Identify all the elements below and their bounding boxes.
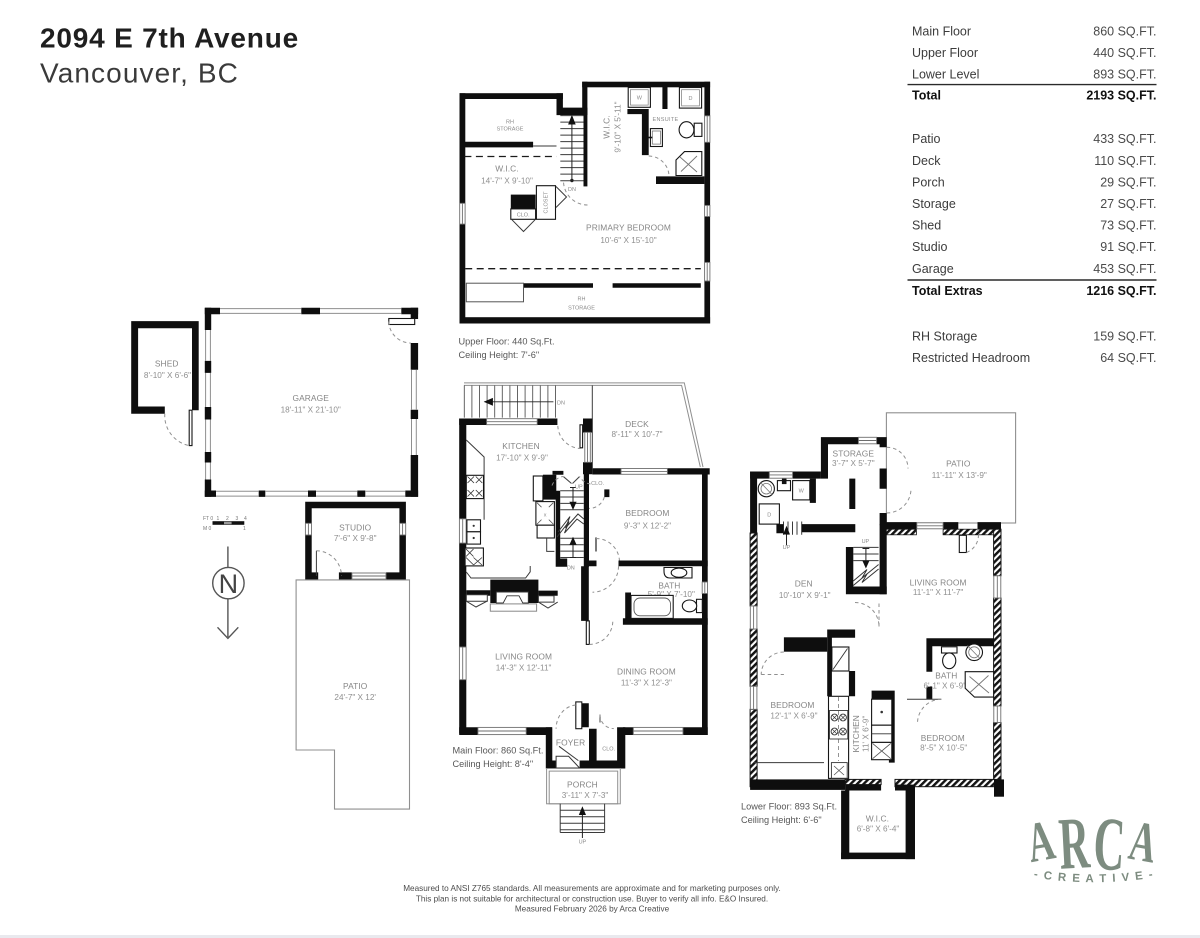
svg-text:24'-7" X 12': 24'-7" X 12' bbox=[334, 693, 376, 702]
svg-text:3'-7" X 5'-7": 3'-7" X 5'-7" bbox=[832, 459, 875, 468]
svg-text:Garage: Garage bbox=[912, 262, 954, 276]
svg-text:DN: DN bbox=[568, 187, 576, 193]
svg-text:Measured to ANSI Z765 standard: Measured to ANSI Z765 standards. All mea… bbox=[403, 884, 781, 893]
svg-text:11'-3" X 12'-3": 11'-3" X 12'-3" bbox=[621, 679, 672, 688]
svg-text:DN: DN bbox=[557, 400, 565, 406]
svg-text:BEDROOM: BEDROOM bbox=[771, 700, 815, 710]
svg-text:4: 4 bbox=[244, 516, 247, 522]
svg-text:110 SQ.FT.: 110 SQ.FT. bbox=[1094, 154, 1156, 168]
svg-text:LIVING ROOM: LIVING ROOM bbox=[495, 651, 552, 661]
svg-text:Storage: Storage bbox=[912, 197, 956, 211]
svg-text:D: D bbox=[689, 96, 693, 102]
svg-text:Patio: Patio bbox=[912, 132, 941, 146]
svg-text:Measured February 2026 by Arca: Measured February 2026 by Arca Creative bbox=[515, 905, 670, 914]
svg-text:ENSUITE: ENSUITE bbox=[653, 117, 679, 123]
svg-text:7'-6" X 9'-8": 7'-6" X 9'-8" bbox=[334, 534, 377, 543]
svg-text:91 SQ.FT.: 91 SQ.FT. bbox=[1100, 240, 1156, 254]
svg-text:BEDROOM: BEDROOM bbox=[626, 508, 670, 518]
svg-text:W: W bbox=[799, 489, 805, 495]
svg-text:Porch: Porch bbox=[912, 175, 945, 189]
svg-text:453 SQ.FT.: 453 SQ.FT. bbox=[1093, 262, 1156, 276]
svg-text:18'-11" X 21'-10": 18'-11" X 21'-10" bbox=[281, 405, 341, 414]
svg-text:UP: UP bbox=[579, 840, 587, 846]
svg-text:PRIMARY BEDROOM: PRIMARY BEDROOM bbox=[586, 223, 671, 233]
svg-text:This plan is not suitable for: This plan is not suitable for architectu… bbox=[416, 894, 768, 903]
svg-text:W.I.C.: W.I.C. bbox=[602, 115, 612, 138]
svg-text:W: W bbox=[637, 96, 643, 102]
svg-text:FT 0: FT 0 bbox=[203, 516, 213, 522]
svg-text:2193 SQ.FT.: 2193 SQ.FT. bbox=[1086, 89, 1156, 103]
svg-text:W.I.C.: W.I.C. bbox=[866, 813, 889, 823]
svg-text:STUDIO: STUDIO bbox=[339, 522, 372, 532]
svg-text:29 SQ.FT.: 29 SQ.FT. bbox=[1100, 175, 1156, 189]
svg-text:Vancouver, BC: Vancouver, BC bbox=[40, 58, 239, 89]
svg-text:860 SQ.FT.: 860 SQ.FT. bbox=[1093, 24, 1156, 38]
svg-text:N: N bbox=[219, 569, 239, 599]
svg-text:159 SQ.FT.: 159 SQ.FT. bbox=[1093, 329, 1156, 343]
svg-text:UP: UP bbox=[783, 545, 791, 551]
svg-text:PORCH: PORCH bbox=[567, 780, 598, 790]
svg-text:Upper Floor: Upper Floor bbox=[912, 46, 978, 60]
svg-text:CLO.: CLO. bbox=[602, 747, 615, 753]
svg-text:Main Floor: Main Floor bbox=[912, 24, 971, 38]
svg-text:8'-11" X 10'-7": 8'-11" X 10'-7" bbox=[611, 430, 662, 439]
svg-text:9'-10" X 5'-11": 9'-10" X 5'-11" bbox=[614, 101, 623, 152]
svg-text:Ceiling Height: 6'-6": Ceiling Height: 6'-6" bbox=[741, 815, 822, 825]
svg-text:Total Extras: Total Extras bbox=[912, 284, 983, 298]
svg-text:KITCHEN: KITCHEN bbox=[502, 441, 539, 451]
svg-text:Upper Floor: 440 Sq.Ft.: Upper Floor: 440 Sq.Ft. bbox=[459, 337, 555, 347]
svg-text:6'-8" X 6'-4": 6'-8" X 6'-4" bbox=[857, 824, 900, 833]
svg-text:STORAGE: STORAGE bbox=[497, 127, 524, 133]
svg-text:9'-3" X 12'-2": 9'-3" X 12'-2" bbox=[624, 521, 671, 530]
svg-text:DEN: DEN bbox=[795, 579, 813, 589]
svg-text:SHED: SHED bbox=[155, 359, 179, 369]
svg-text:CLO.: CLO. bbox=[517, 213, 530, 219]
svg-text:10'-10" X 9'-1": 10'-10" X 9'-1" bbox=[779, 591, 831, 600]
svg-text:Ceiling Height: 7'-6": Ceiling Height: 7'-6" bbox=[459, 350, 540, 360]
svg-text:Lower Level: Lower Level bbox=[912, 68, 979, 82]
svg-text:LIVING ROOM: LIVING ROOM bbox=[910, 578, 967, 588]
svg-text:Total: Total bbox=[912, 89, 941, 103]
svg-text:W.I.C.: W.I.C. bbox=[495, 163, 518, 173]
svg-text:2094 E 7th Avenue: 2094 E 7th Avenue bbox=[40, 23, 299, 54]
svg-text:2: 2 bbox=[226, 516, 229, 522]
svg-text:14'-3" X 12'-11": 14'-3" X 12'-11" bbox=[496, 664, 552, 673]
svg-text:STORAGE: STORAGE bbox=[568, 306, 595, 312]
svg-text:x: x bbox=[544, 512, 547, 518]
svg-text:11'-11" X 13'-9": 11'-11" X 13'-9" bbox=[932, 471, 987, 480]
svg-text:6'-1" X 6'-9": 6'-1" X 6'-9" bbox=[923, 682, 966, 691]
svg-text:27 SQ.FT.: 27 SQ.FT. bbox=[1100, 197, 1156, 211]
svg-text:BATH: BATH bbox=[935, 671, 957, 681]
svg-text:BATH: BATH bbox=[658, 580, 680, 590]
svg-text:893 SQ.FT.: 893 SQ.FT. bbox=[1093, 68, 1156, 82]
svg-text:CLOSET: CLOSET bbox=[544, 191, 550, 214]
svg-text:RH Storage: RH Storage bbox=[912, 329, 977, 343]
svg-text:11'-1" X 11'-7": 11'-1" X 11'-7" bbox=[913, 588, 964, 597]
svg-text:Ceiling Height: 8'-4": Ceiling Height: 8'-4" bbox=[453, 759, 534, 769]
svg-text:Lower Floor: 893 Sq.Ft.: Lower Floor: 893 Sq.Ft. bbox=[741, 802, 837, 812]
svg-text:RH: RH bbox=[578, 297, 586, 303]
svg-text:GARAGE: GARAGE bbox=[292, 393, 329, 403]
svg-text:UP: UP bbox=[575, 485, 583, 491]
svg-text:RH: RH bbox=[506, 119, 514, 125]
svg-text:Restricted Headroom: Restricted Headroom bbox=[912, 351, 1030, 365]
svg-text:11' X 6'-9": 11' X 6'-9" bbox=[862, 716, 871, 752]
svg-text:FOYER: FOYER bbox=[556, 738, 585, 748]
svg-text:DN: DN bbox=[567, 565, 575, 571]
svg-text:DINING ROOM: DINING ROOM bbox=[617, 666, 676, 676]
svg-text:8'-10" X 6'-6": 8'-10" X 6'-6" bbox=[144, 371, 191, 380]
svg-text:Shed: Shed bbox=[912, 219, 941, 233]
svg-text:BEDROOM: BEDROOM bbox=[921, 733, 965, 743]
svg-text:PATIO: PATIO bbox=[946, 459, 971, 469]
svg-text:12'-1" X 6'-9": 12'-1" X 6'-9" bbox=[770, 711, 817, 720]
svg-text:440 SQ.FT.: 440 SQ.FT. bbox=[1093, 46, 1156, 60]
svg-text:D: D bbox=[767, 513, 771, 519]
svg-text:DECK: DECK bbox=[625, 419, 649, 429]
svg-text:8'-5" X 10'-5": 8'-5" X 10'-5" bbox=[920, 743, 967, 752]
svg-text:Deck: Deck bbox=[912, 154, 941, 168]
svg-text:Main Floor: 860 Sq.Ft.: Main Floor: 860 Sq.Ft. bbox=[453, 746, 544, 756]
svg-text:PATIO: PATIO bbox=[343, 681, 368, 691]
svg-text:M 0: M 0 bbox=[203, 526, 212, 532]
svg-text:73 SQ.FT.: 73 SQ.FT. bbox=[1100, 219, 1156, 233]
svg-text:14'-7" X 9'-10": 14'-7" X 9'-10" bbox=[481, 176, 533, 185]
svg-text:1216 SQ.FT.: 1216 SQ.FT. bbox=[1086, 284, 1156, 298]
svg-text:CLO.: CLO. bbox=[591, 481, 604, 487]
svg-text:UP: UP bbox=[862, 539, 870, 545]
svg-text:433 SQ.FT.: 433 SQ.FT. bbox=[1093, 132, 1156, 146]
svg-text:KITCHEN: KITCHEN bbox=[851, 715, 861, 752]
svg-text:1: 1 bbox=[243, 526, 246, 532]
svg-text:17'-10" X 9'-9": 17'-10" X 9'-9" bbox=[496, 453, 548, 462]
svg-text:STORAGE: STORAGE bbox=[833, 449, 875, 459]
svg-text:3'-11" X 7'-3": 3'-11" X 7'-3" bbox=[562, 791, 609, 800]
svg-text:10'-6" X 15'-10": 10'-6" X 15'-10" bbox=[600, 236, 656, 245]
svg-text:64 SQ.FT.: 64 SQ.FT. bbox=[1100, 351, 1156, 365]
svg-text:3: 3 bbox=[236, 516, 239, 522]
svg-text:1: 1 bbox=[217, 516, 220, 522]
svg-text:Studio: Studio bbox=[912, 240, 947, 254]
